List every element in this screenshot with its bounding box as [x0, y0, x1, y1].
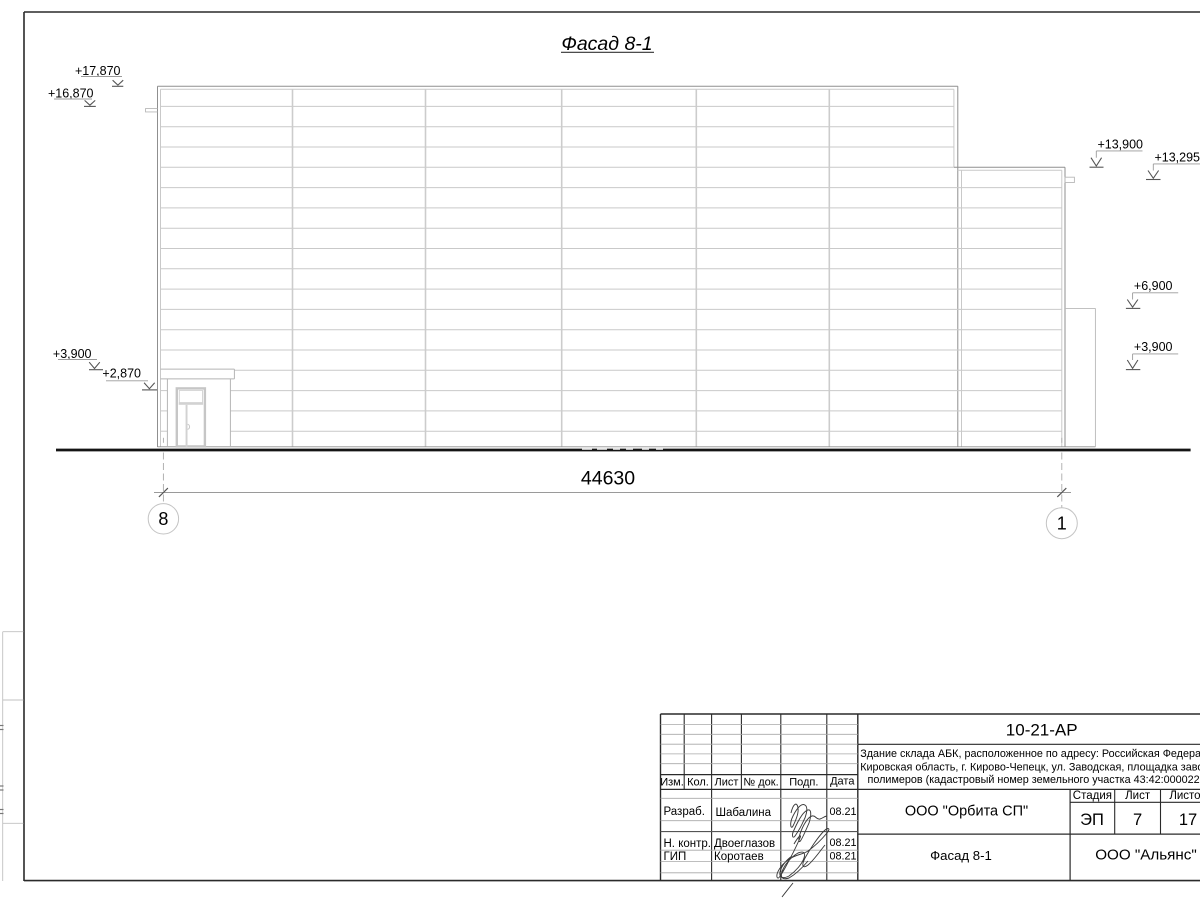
svg-text:08.21: 08.21	[830, 806, 857, 818]
svg-text:Подп.: Подп.	[789, 777, 818, 789]
svg-text:+17,870: +17,870	[75, 64, 121, 78]
svg-text:Изм.: Изм.	[660, 777, 684, 789]
svg-text:Лист: Лист	[715, 777, 739, 789]
svg-text:08.21: 08.21	[830, 837, 857, 849]
svg-text:№ док.: № док.	[743, 777, 778, 789]
svg-text:ГИП: ГИП	[664, 851, 687, 863]
svg-text:44630: 44630	[581, 468, 635, 490]
svg-text:+3,900: +3,900	[1134, 340, 1173, 354]
svg-text:Стадия: Стадия	[1073, 790, 1112, 802]
svg-text:Н. контр.: Н. контр.	[664, 838, 711, 850]
svg-text:08.21: 08.21	[830, 851, 857, 863]
svg-text:7: 7	[1133, 811, 1142, 829]
svg-text:Лист: Лист	[1125, 790, 1151, 802]
svg-text:10-21-АР: 10-21-АР	[1006, 721, 1078, 740]
svg-text:Листов: Листов	[1169, 790, 1200, 802]
svg-text:1: 1	[1057, 514, 1067, 534]
svg-text:+3,900: +3,900	[53, 347, 92, 361]
svg-text:Фасад 8-1: Фасад 8-1	[930, 848, 992, 863]
svg-text:Коротаев: Коротаев	[714, 851, 764, 863]
svg-text:ООО "Альянс": ООО "Альянс"	[1095, 847, 1197, 864]
svg-text:Кол.: Кол.	[687, 777, 709, 789]
svg-text:Кировская область, г. Кирово-Ч: Кировская область, г. Кирово-Чепецк, ул.…	[860, 761, 1200, 773]
svg-text:8: 8	[158, 509, 168, 529]
svg-text:+13,295: +13,295	[1154, 150, 1200, 164]
svg-text:Здание склада АБК, расположенн: Здание склада АБК, расположенное по адре…	[860, 748, 1200, 760]
svg-text:+16,870: +16,870	[48, 86, 94, 100]
svg-text:Двоеглазов: Двоеглазов	[714, 838, 775, 850]
svg-text:+13,900: +13,900	[1097, 137, 1143, 151]
svg-text:+6,900: +6,900	[1134, 279, 1173, 293]
svg-text:+2,870: +2,870	[102, 367, 141, 381]
svg-text:Шабалина: Шабалина	[716, 807, 772, 819]
svg-text:17: 17	[1179, 811, 1197, 829]
svg-text:полимеров (кадастровый номер з: полимеров (кадастровый номер земельного …	[868, 774, 1200, 786]
svg-text:ООО "Орбита СП": ООО "Орбита СП"	[905, 804, 1028, 820]
svg-text:Дата: Дата	[830, 776, 855, 788]
svg-text:Разраб.: Разраб.	[664, 806, 705, 818]
svg-text:ЭП: ЭП	[1080, 811, 1104, 829]
